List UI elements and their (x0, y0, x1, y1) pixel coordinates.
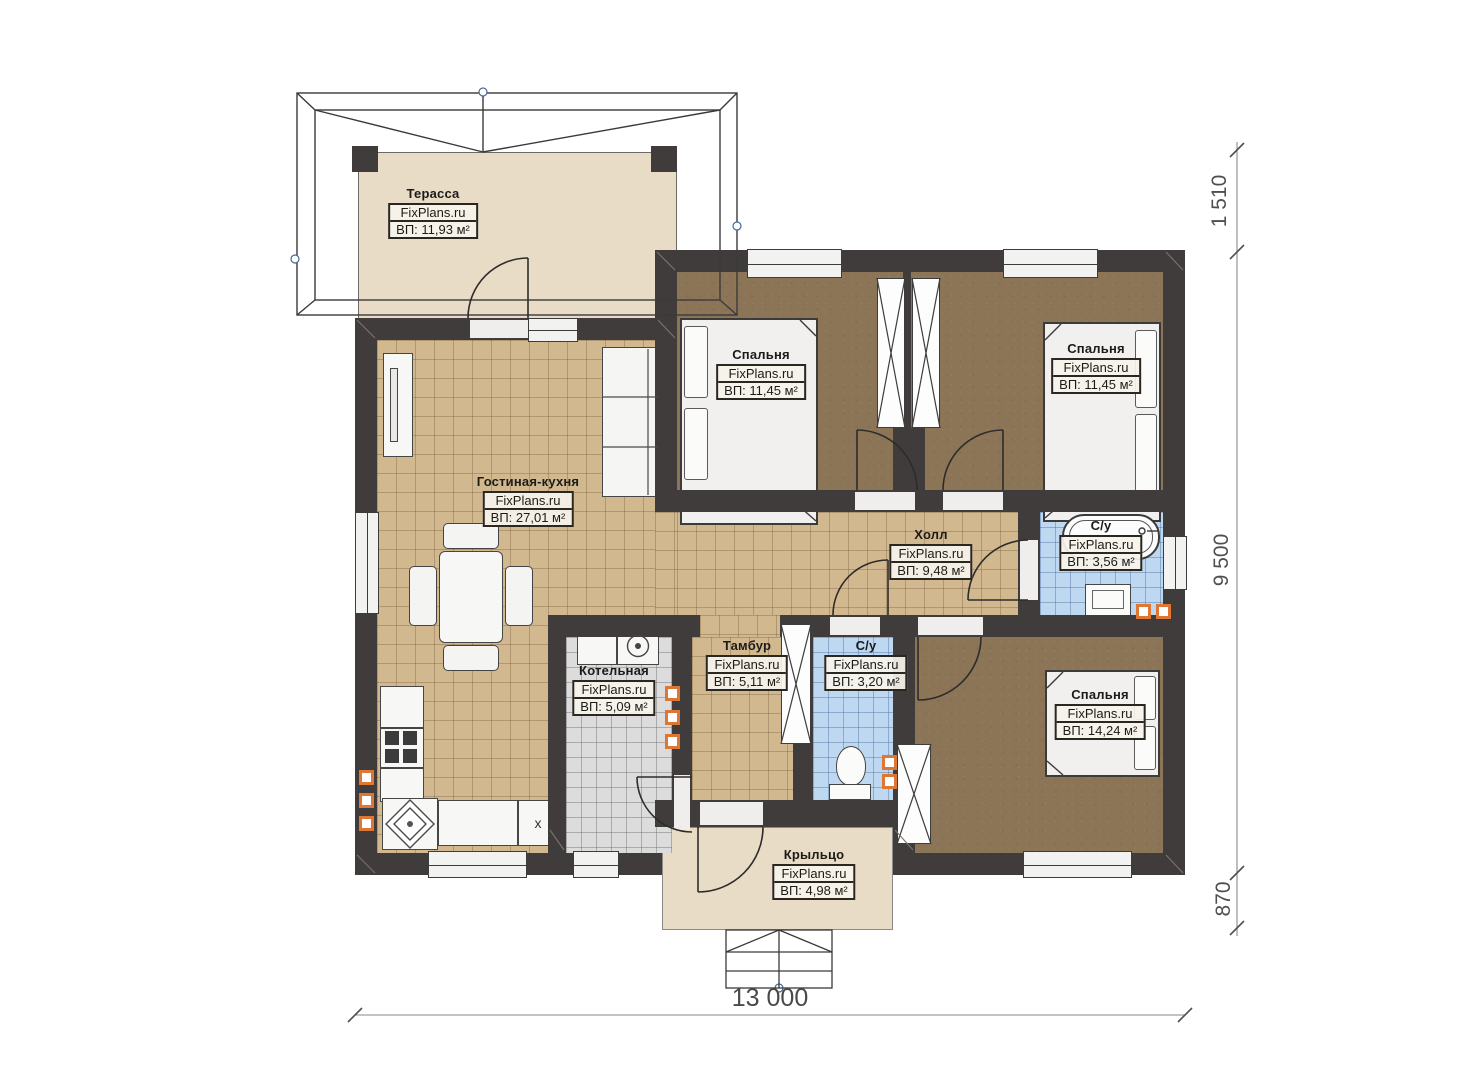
window (1163, 536, 1187, 590)
vent-icon (359, 770, 374, 785)
door-opening (830, 617, 880, 635)
floor-plan: x (0, 0, 1473, 1080)
room-name: Крыльцо (772, 847, 855, 862)
pillow (684, 408, 708, 480)
toilet-tank (829, 784, 871, 800)
room-label-living-kitchen: Гостиная-кухня FixPlans.ru ВП: 27,01 м² (477, 474, 579, 527)
vent-icon (665, 686, 680, 701)
vent-icon (1136, 604, 1151, 619)
room-name: Терасса (388, 186, 478, 201)
vent-icon (665, 710, 680, 725)
wall (655, 250, 677, 512)
terrace-post (651, 146, 677, 172)
dimension-right-top: 1 510 (1208, 175, 1232, 228)
room-area: ВП: 3,56 м² (1061, 554, 1140, 569)
chair (443, 645, 499, 671)
brand-label: FixPlans.ru (1053, 360, 1139, 377)
room-label-hall: Холл FixPlans.ru ВП: 9,48 м² (889, 527, 972, 580)
room-label-bathroom-small: С/у FixPlans.ru ВП: 3,20 м² (824, 638, 907, 691)
wardrobe (912, 278, 940, 428)
room-label-bedroom-top-left: Спальня FixPlans.ru ВП: 11,45 м² (716, 347, 806, 400)
room-label-bathroom-main: С/у FixPlans.ru ВП: 3,56 м² (1059, 518, 1142, 571)
brand-label: FixPlans.ru (718, 366, 804, 383)
vent-icon (665, 734, 680, 749)
floor-hall-vestibule-gap (700, 615, 780, 637)
room-name: Спальня (1051, 341, 1141, 356)
room-area: ВП: 27,01 м² (485, 510, 572, 525)
wardrobe (897, 744, 931, 844)
brand-label: FixPlans.ru (485, 493, 572, 510)
room-area: ВП: 11,93 м² (390, 222, 476, 237)
room-area: ВП: 11,45 м² (1053, 377, 1139, 392)
vent-icon (1156, 604, 1171, 619)
room-label-terrace: Терасса FixPlans.ru ВП: 11,93 м² (388, 186, 478, 239)
terrace-post (352, 146, 378, 172)
window (573, 851, 619, 878)
wall (548, 615, 566, 853)
room-name: С/у (1059, 518, 1142, 533)
room-label-bedroom-top-right: Спальня FixPlans.ru ВП: 11,45 м² (1051, 341, 1141, 394)
pillow (1135, 414, 1157, 492)
window (1003, 249, 1098, 278)
wardrobe (877, 278, 905, 428)
door-opening (943, 492, 1003, 510)
room-name: Тамбур (706, 638, 788, 653)
vent-icon (882, 755, 897, 770)
room-label-vestibule: Тамбур FixPlans.ru ВП: 5,11 м² (706, 638, 788, 691)
vent-icon (359, 816, 374, 831)
room-area: ВП: 3,20 м² (826, 674, 905, 689)
porch-steps (726, 930, 832, 988)
door-opening (918, 617, 983, 635)
chair (505, 566, 533, 626)
brand-label: FixPlans.ru (826, 657, 905, 674)
window (528, 318, 578, 342)
kitchen-counter (438, 800, 518, 846)
entrance-door-opening (700, 802, 763, 825)
room-name: Гостиная-кухня (477, 474, 579, 489)
room-name: С/у (824, 638, 907, 653)
brand-label: FixPlans.ru (390, 205, 476, 222)
door-opening (855, 492, 915, 510)
wall (655, 800, 915, 827)
toilet-bowl (836, 746, 866, 786)
room-area: ВП: 9,48 м² (891, 563, 970, 578)
window (355, 512, 379, 614)
dimension-right-main: 9 500 (1210, 534, 1234, 587)
tv-screen (390, 368, 398, 442)
tv-stand (383, 353, 413, 457)
pillow (684, 326, 708, 398)
sofa (602, 347, 658, 497)
brand-label: FixPlans.ru (774, 866, 853, 883)
wall (655, 250, 1185, 272)
brand-label: FixPlans.ru (1061, 537, 1140, 554)
brand-label: FixPlans.ru (574, 682, 653, 699)
dining-table (439, 551, 503, 643)
door-opening (1020, 540, 1038, 600)
room-label-boiler: Котельная FixPlans.ru ВП: 5,09 м² (572, 663, 655, 716)
corner-sink-cabinet (382, 798, 438, 850)
room-area: ВП: 14,24 м² (1057, 723, 1144, 738)
window (1023, 851, 1132, 878)
vent-icon (882, 774, 897, 789)
room-area: ВП: 4,98 м² (774, 883, 853, 898)
room-area: ВП: 5,11 м² (708, 674, 786, 689)
room-name: Холл (889, 527, 972, 542)
vent-icon (359, 793, 374, 808)
room-area: ВП: 11,45 м² (718, 383, 804, 398)
room-area: ВП: 5,09 м² (574, 699, 653, 714)
door-opening (674, 775, 690, 830)
fridge (380, 686, 424, 728)
stove (380, 728, 424, 768)
window (747, 249, 842, 278)
room-name: Котельная (572, 663, 655, 678)
chair (409, 566, 437, 626)
brand-label: FixPlans.ru (891, 546, 970, 563)
floor-hall-opening (655, 512, 677, 615)
kitchen-counter (380, 768, 424, 802)
room-label-porch: Крыльцо FixPlans.ru ВП: 4,98 м² (772, 847, 855, 900)
dimension-bottom-total: 13 000 (732, 984, 808, 1013)
window (428, 851, 527, 878)
brand-label: FixPlans.ru (1057, 706, 1144, 723)
brand-label: FixPlans.ru (708, 657, 786, 674)
dimension-right-bottom: 870 (1212, 881, 1236, 916)
sink-basin (1092, 590, 1124, 609)
room-name: Спальня (716, 347, 806, 362)
room-name: Спальня (1055, 687, 1146, 702)
door-opening (470, 320, 528, 338)
room-label-bedroom-bottom: Спальня FixPlans.ru ВП: 14,24 м² (1055, 687, 1146, 740)
